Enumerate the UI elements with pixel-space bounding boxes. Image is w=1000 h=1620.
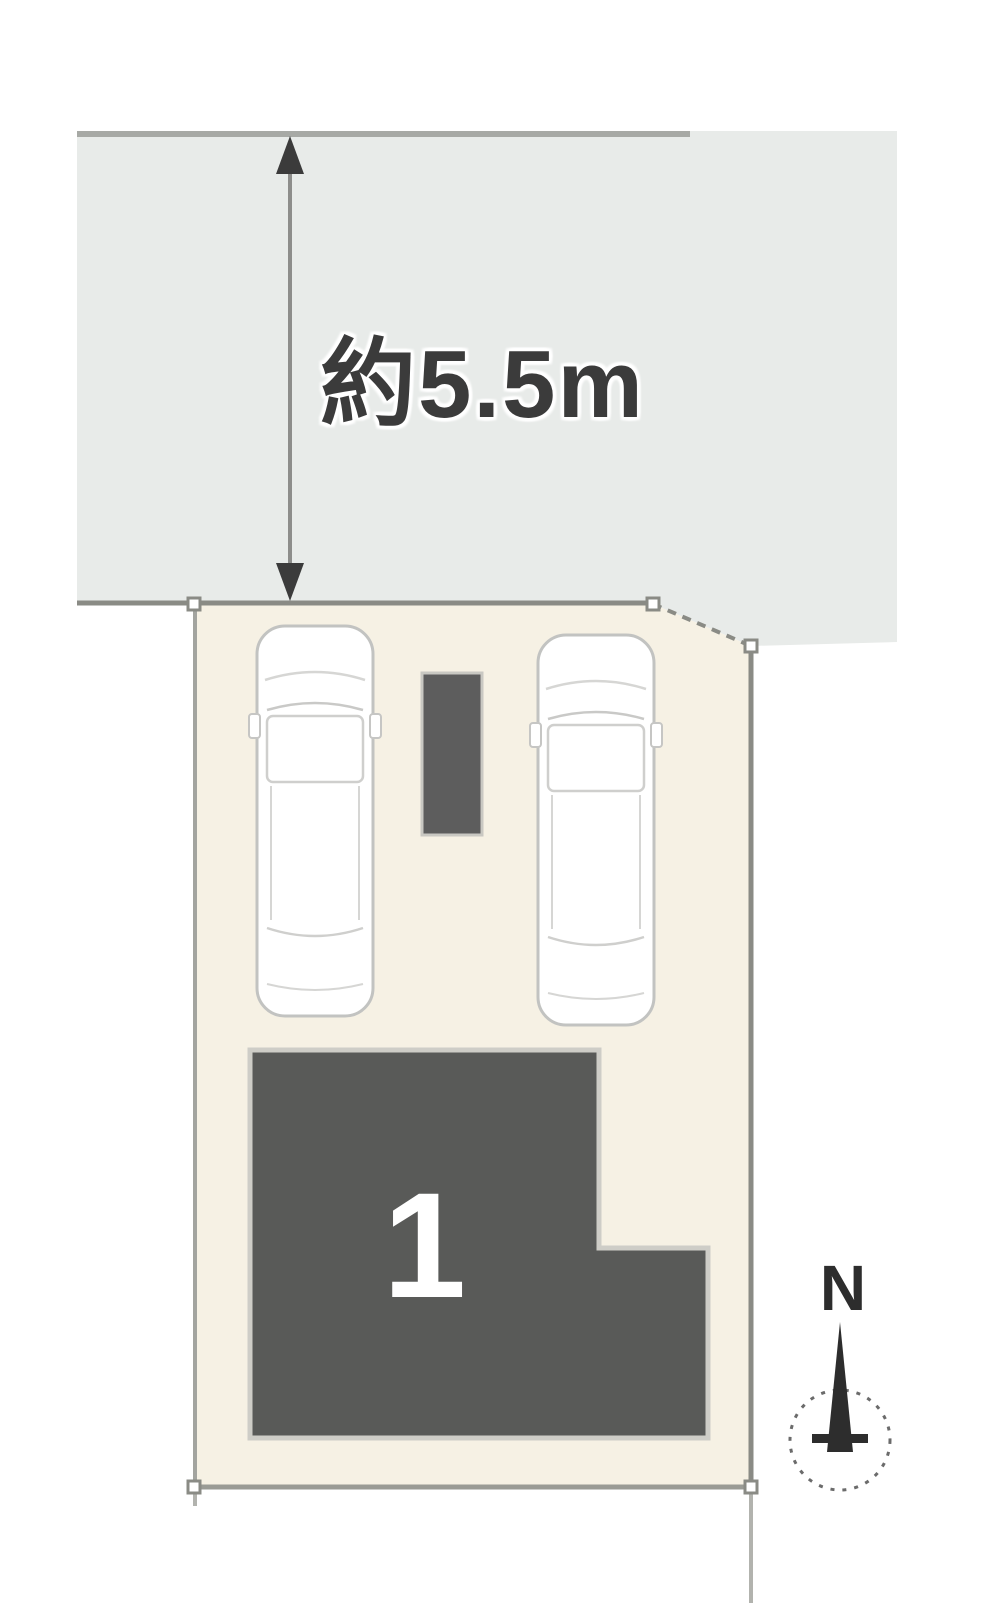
site-plan-diagram: 約5.5m 1 N	[0, 0, 1000, 1620]
car-left	[249, 626, 381, 1016]
building-number: 1	[250, 1170, 599, 1320]
road-width-label: 約5.5m	[320, 306, 645, 445]
car-right	[530, 635, 662, 1025]
compass-needle	[827, 1322, 853, 1452]
site-plan-drawing	[0, 0, 1000, 1620]
dark-block	[422, 673, 482, 835]
north-label: N	[800, 1256, 886, 1320]
north-arrow	[790, 1322, 890, 1490]
